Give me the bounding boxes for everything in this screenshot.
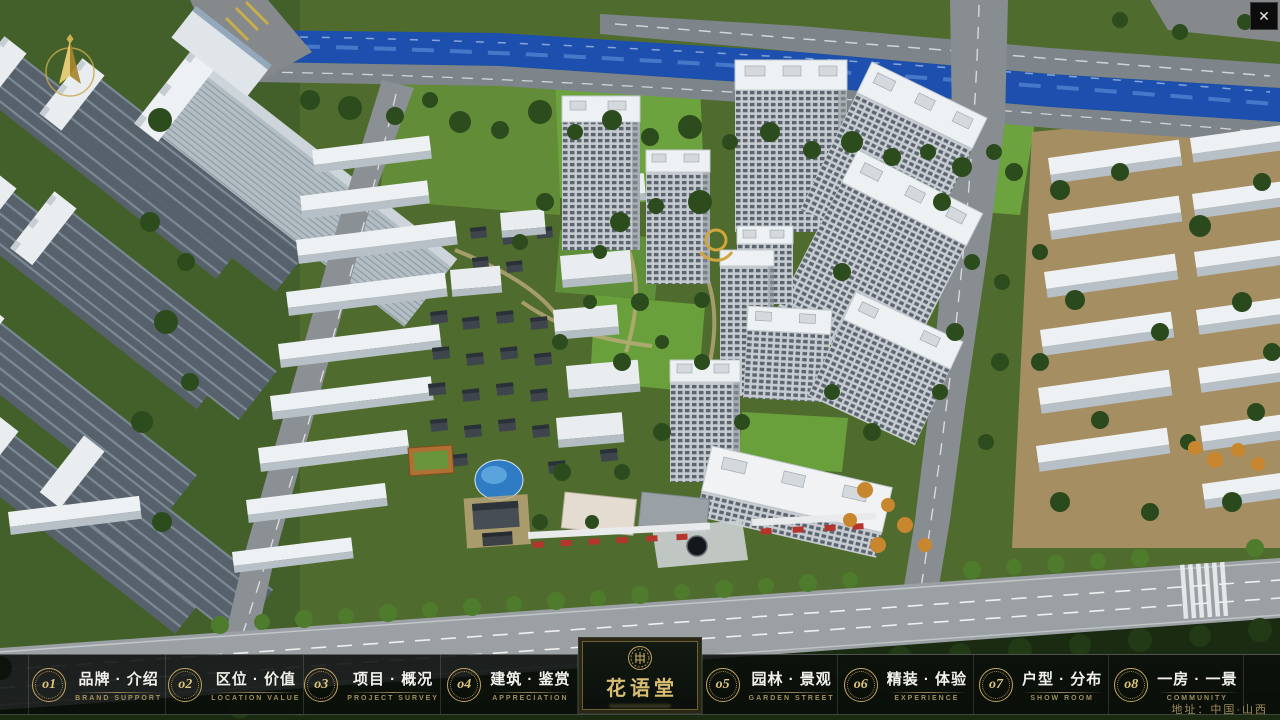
menu-item-title: 户型 · 分布 [1022,668,1102,689]
menu-item-divider [749,692,835,693]
menu-item-subtitle: GARDEN STREET [749,695,835,702]
project-name: 花语堂 [602,672,678,701]
menu-item-divider [887,692,967,693]
presentation-stage: ✕ o1 品牌 · 介绍 BRAND SUPPORT o2 区位 · 价值 LO… [0,0,1280,720]
menu-item-divider [1157,692,1237,693]
menu-item-subtitle: LOCATION VALUE [211,695,300,702]
menu-item-labels: 园林 · 景观 GARDEN STREET [749,668,835,702]
menu-item-title: 项目 · 概况 [353,668,433,689]
site-aerial-render [0,0,1280,720]
orange-building [408,445,454,476]
menu-item-brand[interactable]: o1 品牌 · 介绍 BRAND SUPPORT [28,655,165,714]
menu-number-badge: o1 [32,668,66,702]
entrance-feature [687,536,707,556]
menu-number-badge: o8 [1114,668,1148,702]
project-logo-panel[interactable]: 花语堂 [578,637,702,714]
menu-number-badge: o4 [447,668,481,702]
nav-group-right: o5 园林 · 景观 GARDEN STREET o6 精装 · 体验 EXPE… [702,655,1244,714]
menu-item-divider [1022,692,1102,693]
menu-item-divider [490,692,570,693]
menu-item-labels: 一房 · 一景 COMMUNITY [1157,668,1237,702]
menu-number-badge: o5 [706,668,740,702]
seal-emblem-icon [627,645,653,671]
menu-item-architecture[interactable]: o4 建筑 · 鉴赏 APPRECIATION [440,655,578,714]
menu-item-title: 园林 · 景观 [751,668,831,689]
menu-item-interior[interactable]: o6 精装 · 体验 EXPERIENCE [837,655,972,714]
menu-item-project[interactable]: o3 项目 · 概况 PROJECT SURVEY [303,655,440,714]
clubhouse [464,494,531,548]
menu-item-subtitle: PROJECT SURVEY [347,695,439,702]
menu-item-title: 精装 · 体验 [887,668,967,689]
menu-item-labels: 建筑 · 鉴赏 APPRECIATION [490,668,570,702]
menu-item-labels: 精装 · 体验 EXPERIENCE [887,668,967,702]
menu-item-labels: 项目 · 概况 PROJECT SURVEY [347,668,439,702]
menu-item-divider [75,692,162,693]
menu-number-badge: o7 [979,668,1013,702]
menu-item-title: 区位 · 价值 [216,668,296,689]
compass-icon [40,32,100,104]
menu-number-badge: o2 [168,668,202,702]
nav-group-left: o1 品牌 · 介绍 BRAND SUPPORT o2 区位 · 价值 LOCA… [28,655,578,714]
close-button[interactable]: ✕ [1250,2,1278,30]
menu-item-subtitle: BRAND SUPPORT [75,695,162,702]
menu-item-labels: 区位 · 价值 LOCATION VALUE [211,668,300,702]
menu-item-title: 品牌 · 介绍 [78,668,158,689]
menu-item-subtitle: APPRECIATION [492,695,568,702]
logo-subtitle [609,704,671,708]
menu-item-floorplans[interactable]: o7 户型 · 分布 SHOW ROOM [973,655,1108,714]
menu-item-garden[interactable]: o5 园林 · 景观 GARDEN STREET [702,655,837,714]
menu-item-divider [347,692,439,693]
menu-item-subtitle: SHOW ROOM [1030,695,1094,702]
menu-item-labels: 户型 · 分布 SHOW ROOM [1022,668,1102,702]
menu-item-labels: 品牌 · 介绍 BRAND SUPPORT [75,668,162,702]
address-text: 地址：中国·山西 [1171,701,1268,717]
menu-item-title: 一房 · 一景 [1157,668,1237,689]
menu-number-badge: o6 [844,668,878,702]
menu-item-title: 建筑 · 鉴赏 [490,668,570,689]
menu-item-location[interactable]: o2 区位 · 价值 LOCATION VALUE [165,655,302,714]
menu-item-divider [211,692,300,693]
menu-item-subtitle: EXPERIENCE [894,695,959,702]
menu-number-badge: o3 [304,668,338,702]
